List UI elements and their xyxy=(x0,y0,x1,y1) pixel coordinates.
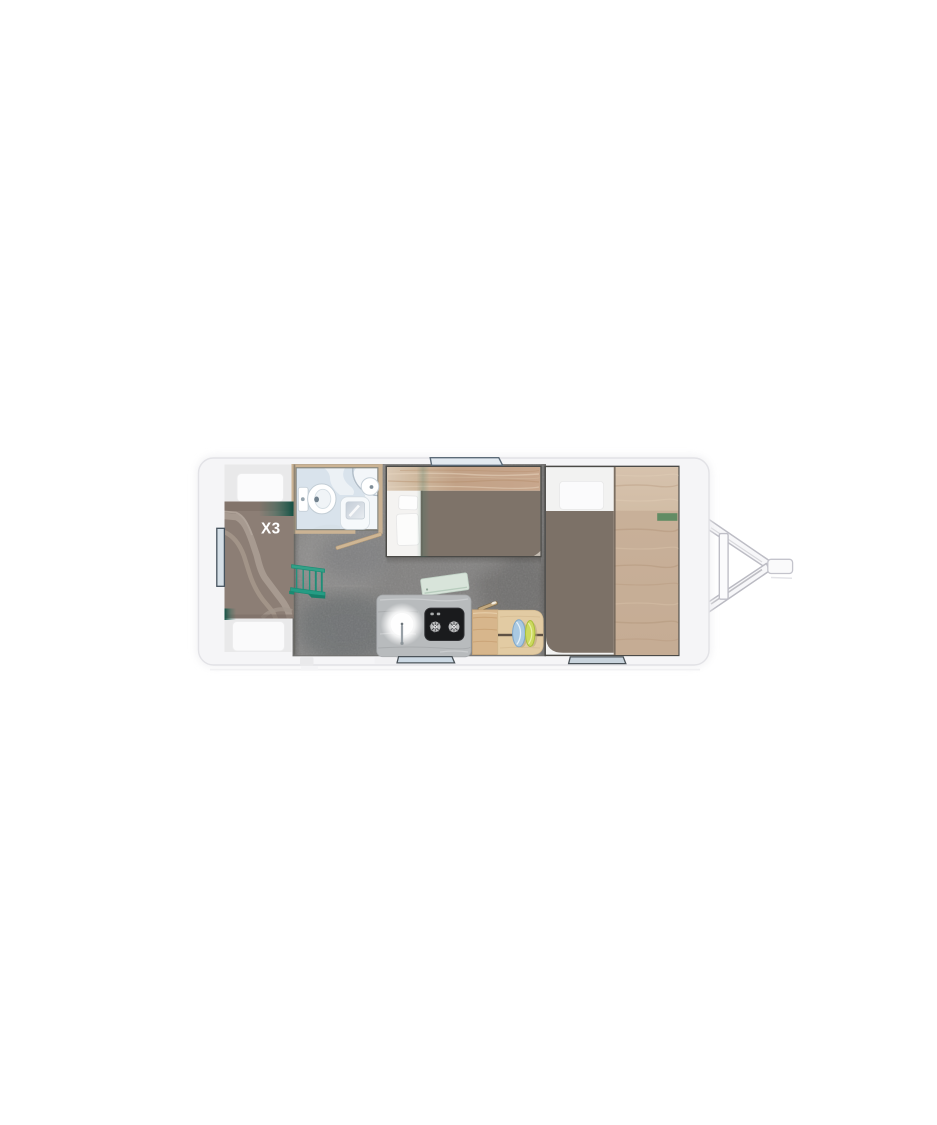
svg-text:X3: X3 xyxy=(261,520,281,537)
